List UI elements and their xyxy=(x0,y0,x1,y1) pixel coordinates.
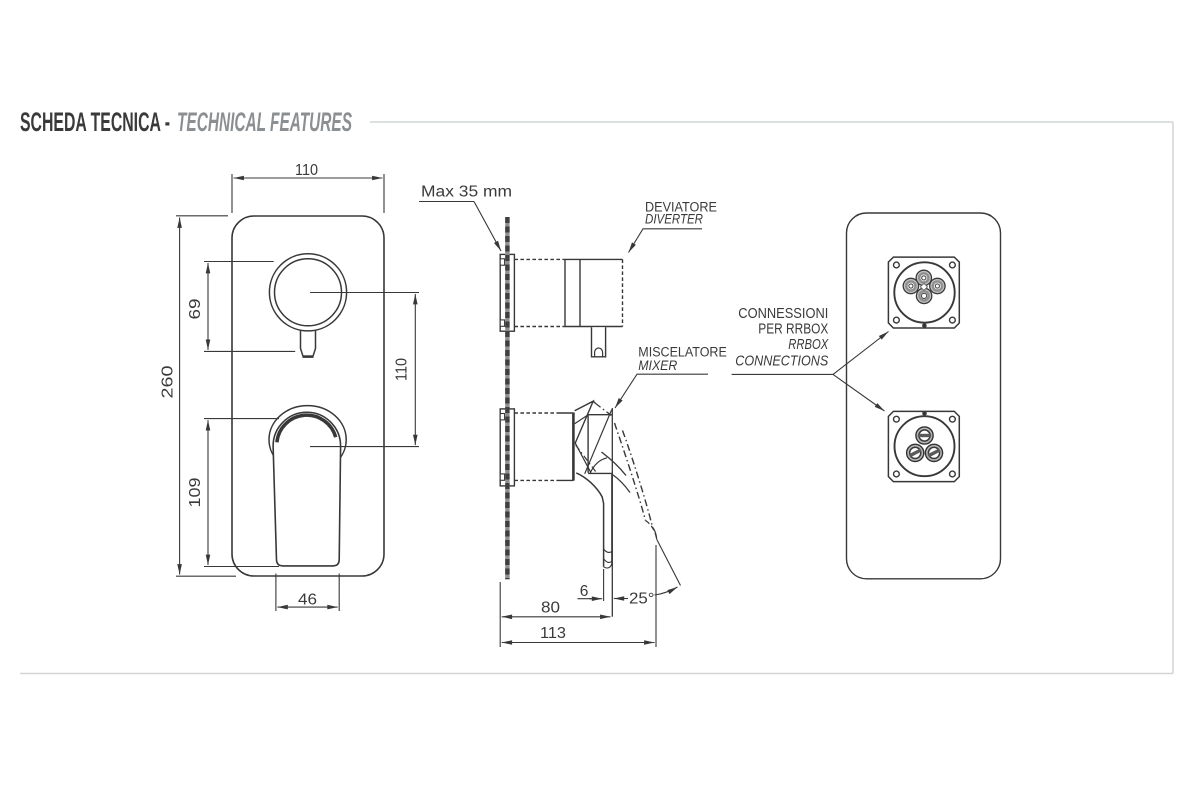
svg-text:46: 46 xyxy=(298,592,317,609)
svg-text:25°: 25° xyxy=(629,591,655,608)
svg-text:110: 110 xyxy=(394,358,411,381)
svg-text:TECHNICAL FEATURES: TECHNICAL FEATURES xyxy=(177,107,352,137)
svg-text:109: 109 xyxy=(187,477,204,507)
svg-text:CONNESSIONI: CONNESSIONI xyxy=(738,305,828,322)
svg-text:DIVERTER: DIVERTER xyxy=(645,212,703,227)
svg-text:CONNECTIONS: CONNECTIONS xyxy=(735,352,828,369)
svg-text:6: 6 xyxy=(580,583,589,600)
svg-text:69: 69 xyxy=(187,298,204,319)
svg-text:SCHEDA TECNICA -: SCHEDA TECNICA - xyxy=(20,107,170,137)
svg-text:113: 113 xyxy=(540,625,566,642)
svg-text:260: 260 xyxy=(160,365,177,398)
svg-text:Max 35 mm: Max 35 mm xyxy=(421,184,512,201)
svg-text:80: 80 xyxy=(541,600,560,617)
svg-text:110: 110 xyxy=(295,162,318,179)
svg-text:RRBOX: RRBOX xyxy=(788,336,829,353)
svg-text:MIXER: MIXER xyxy=(638,358,677,373)
